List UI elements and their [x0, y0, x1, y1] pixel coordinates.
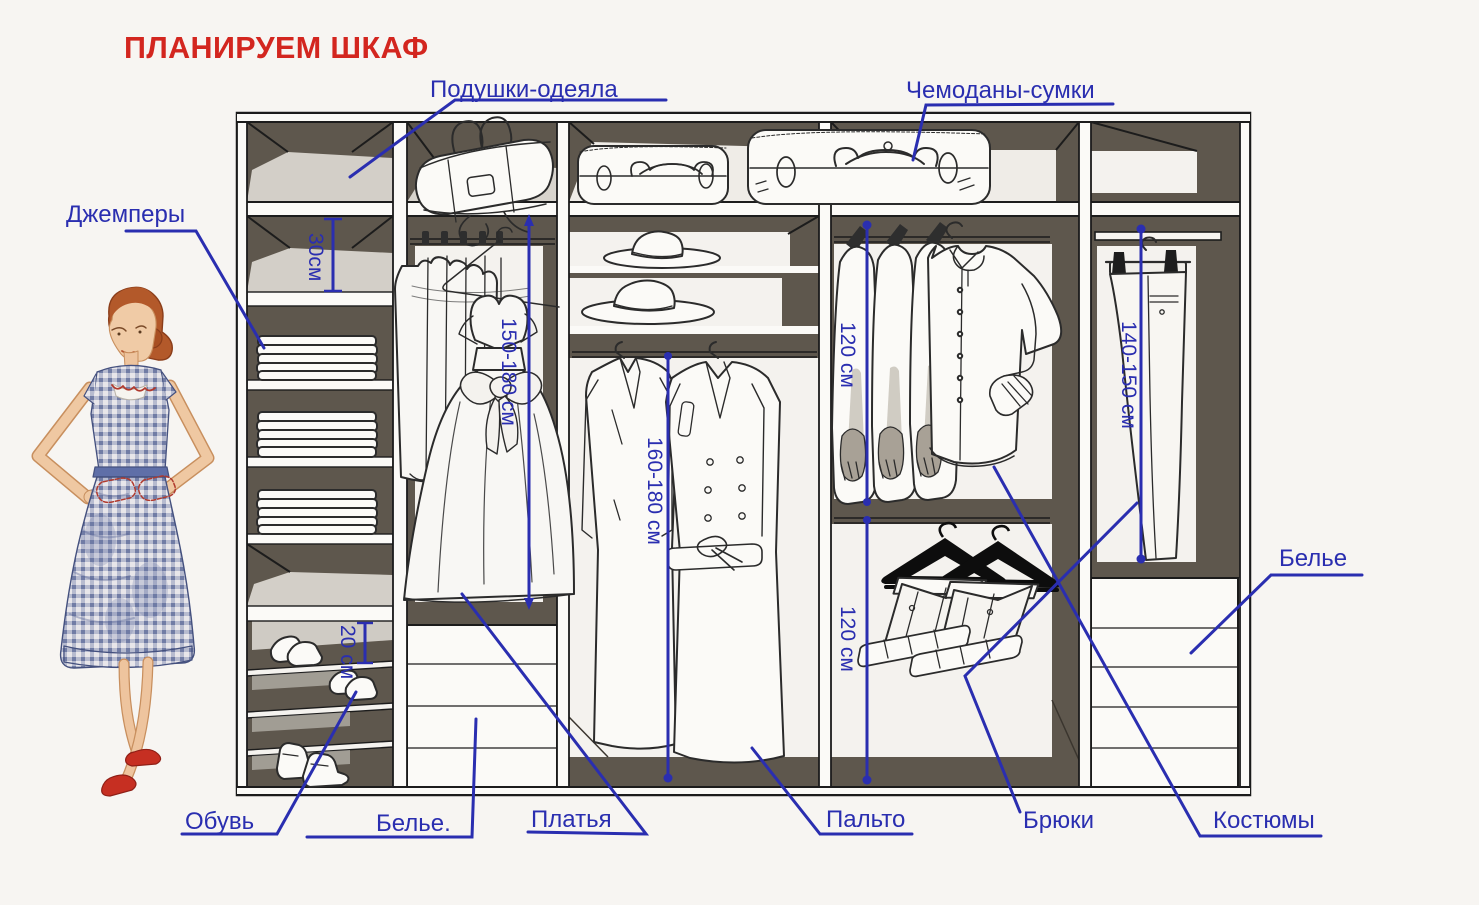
svg-text:Обувь: Обувь — [185, 808, 254, 835]
svg-text:Платья: Платья — [531, 806, 612, 833]
svg-text:150-180 см: 150-180 см — [497, 318, 520, 426]
svg-text:120 см: 120 см — [836, 606, 859, 672]
svg-text:120 см: 120 см — [836, 322, 859, 388]
svg-text:140-150 см: 140-150 см — [1117, 321, 1140, 429]
svg-text:Брюки: Брюки — [1023, 807, 1094, 834]
svg-text:Чемоданы-сумки: Чемоданы-сумки — [906, 77, 1095, 104]
svg-text:160-180 см: 160-180 см — [643, 437, 666, 545]
svg-text:Джемперы: Джемперы — [66, 201, 185, 228]
svg-text:Белье.: Белье. — [376, 810, 451, 837]
svg-text:30см: 30см — [304, 233, 327, 281]
svg-text:20 см: 20 см — [336, 625, 359, 679]
svg-text:ПЛАНИРУЕМ ШКАФ: ПЛАНИРУЕМ ШКАФ — [124, 31, 429, 65]
svg-text:Белье: Белье — [1279, 545, 1347, 572]
svg-text:Пальто: Пальто — [826, 806, 905, 833]
svg-text:Костюмы: Костюмы — [1213, 807, 1315, 834]
